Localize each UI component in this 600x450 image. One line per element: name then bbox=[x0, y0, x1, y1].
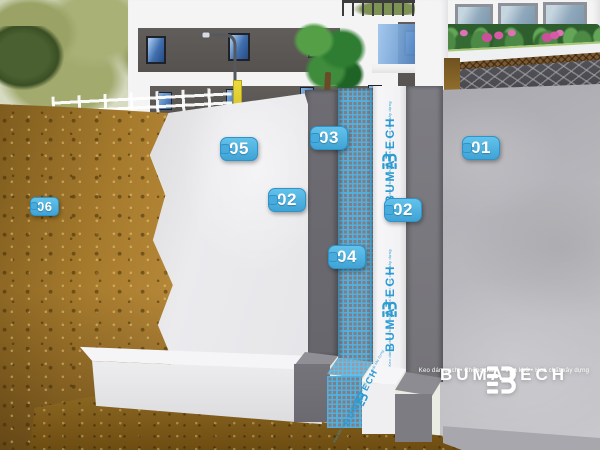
membrane-print: BUMATECH Keo dán gạch • Chống thấm • Vữa… bbox=[373, 248, 406, 368]
callout-marker bbox=[30, 202, 38, 210]
balcony-glass bbox=[378, 24, 420, 68]
footer-brand-tagline: Keo dán gạch • Chống thấm • Vữa khô • Ho… bbox=[419, 368, 589, 374]
callout-marker bbox=[268, 195, 278, 205]
mortar-right-step-front bbox=[395, 394, 432, 442]
callout-marker bbox=[384, 205, 394, 215]
callout-marker bbox=[328, 252, 338, 262]
callout-marker bbox=[462, 143, 472, 153]
bush bbox=[0, 26, 70, 92]
callout-marker bbox=[310, 133, 320, 143]
window bbox=[146, 36, 166, 64]
mortar-layer-right bbox=[406, 86, 443, 382]
callout-marker bbox=[220, 144, 230, 154]
waterproofing-infographic: BUMATECH Keo dán gạch • Chống thấm • Vữa… bbox=[0, 0, 600, 450]
protection-wall-layer bbox=[140, 88, 308, 360]
mortar-left-step-front bbox=[294, 364, 330, 422]
membrane-tagline-text: Keo dán gạch • Chống thấm • Vữa khô • Ho… bbox=[387, 249, 393, 366]
